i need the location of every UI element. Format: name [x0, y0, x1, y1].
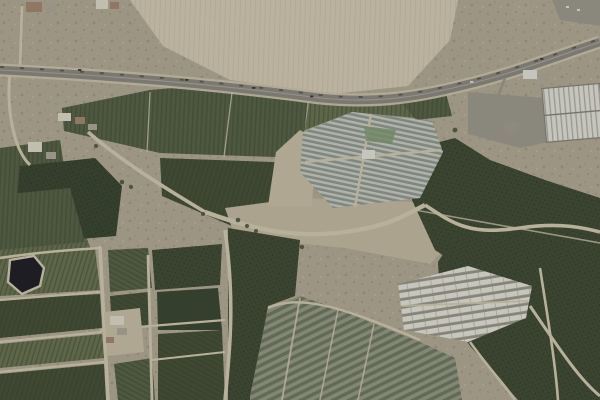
satellite-canvas[interactable]: [0, 0, 600, 400]
photo-noise: [0, 0, 600, 400]
satellite-viewport: [0, 0, 600, 400]
noise-fine: [0, 0, 600, 400]
